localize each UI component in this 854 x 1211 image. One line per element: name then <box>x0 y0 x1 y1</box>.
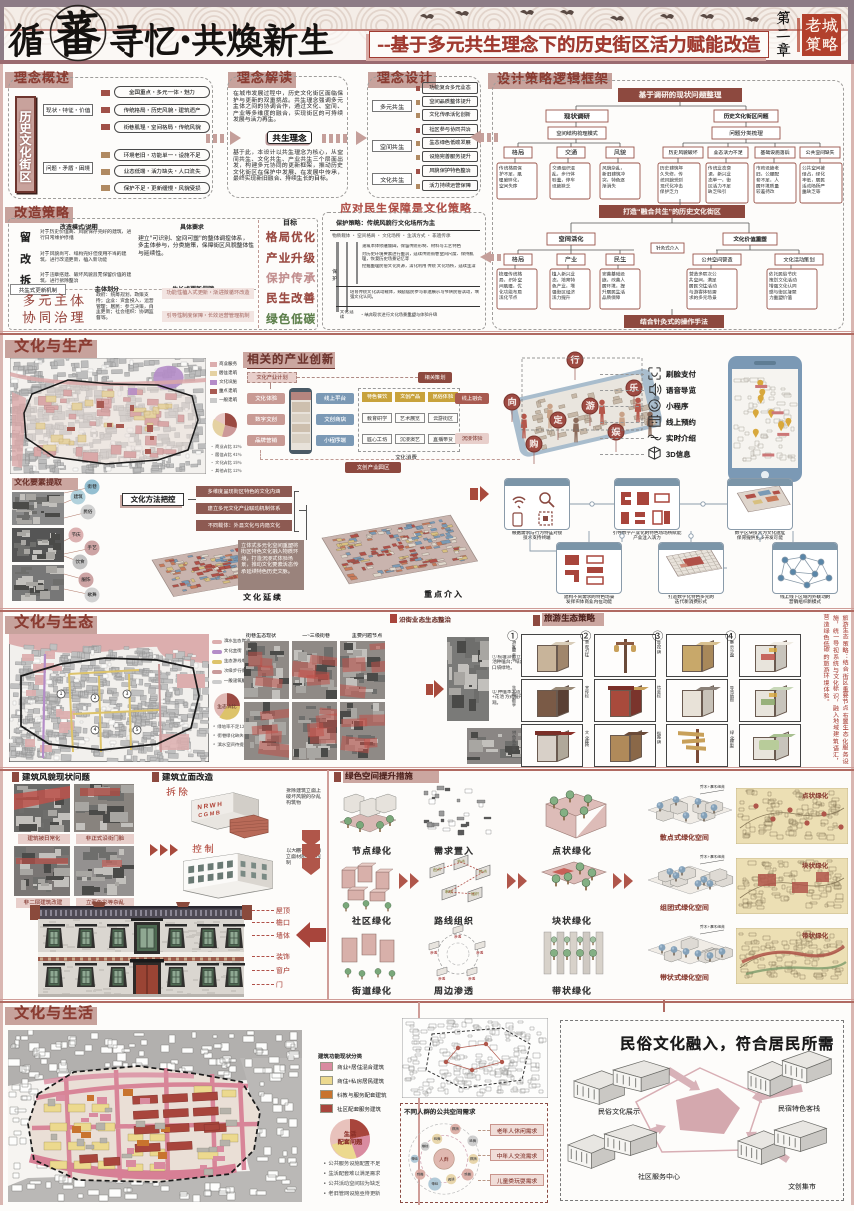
svg-text:5: 5 <box>136 726 139 733</box>
svg-text:乔木+灌木组合: 乔木+灌木组合 <box>699 784 725 790</box>
svg-text:乔木+灌木组合: 乔木+灌木组合 <box>699 924 725 930</box>
svg-text:乐: 乐 <box>628 381 638 394</box>
svg-text:生态占比: 生态占比 <box>217 703 236 710</box>
svg-text:娱: 娱 <box>610 425 620 438</box>
svg-text:4: 4 <box>94 726 97 733</box>
svg-text:游: 游 <box>584 399 595 412</box>
svg-text:散点式绿化空间: 散点式绿化空间 <box>660 833 709 843</box>
svg-text:购: 购 <box>528 437 538 450</box>
svg-text:定: 定 <box>553 413 563 426</box>
svg-text:3: 3 <box>126 690 129 697</box>
svg-text:组团式绿化空间: 组团式绿化空间 <box>659 903 709 913</box>
svg-text:1: 1 <box>60 690 63 697</box>
svg-text:带状式绿化空间: 带状式绿化空间 <box>660 973 709 983</box>
svg-text:行: 行 <box>570 353 579 366</box>
svg-text:2: 2 <box>94 694 97 701</box>
svg-text:向: 向 <box>507 395 516 408</box>
svg-text:乔木+灌木组合: 乔木+灌木组合 <box>699 854 725 860</box>
